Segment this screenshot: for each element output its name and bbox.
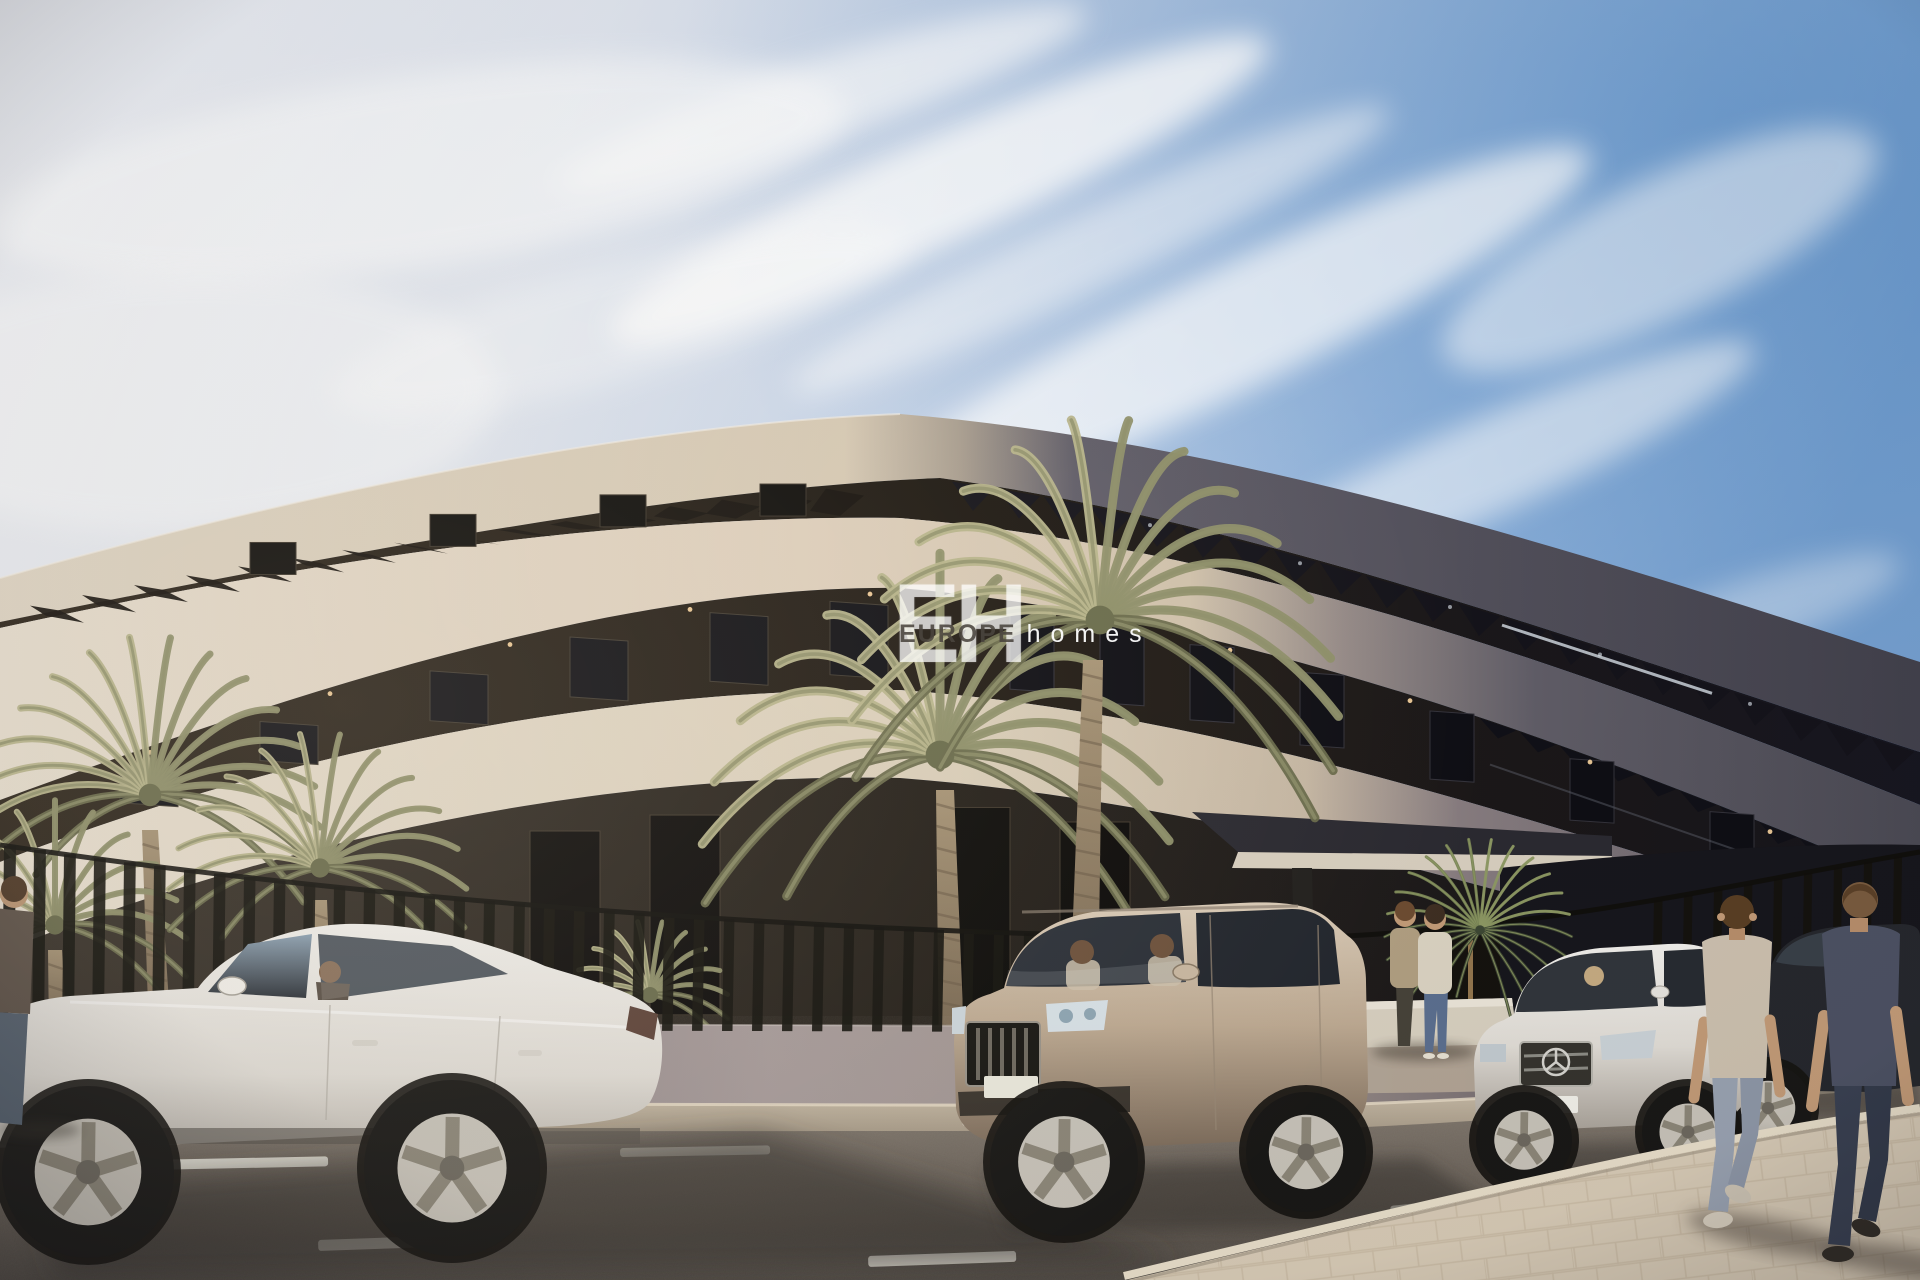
architectural-rendering: TO EH EUROPEhomes [0, 0, 1920, 1280]
rendering-canvas: TO [0, 0, 1920, 1280]
color-grade-overlay [0, 0, 1920, 1280]
vignette [0, 0, 1920, 1280]
